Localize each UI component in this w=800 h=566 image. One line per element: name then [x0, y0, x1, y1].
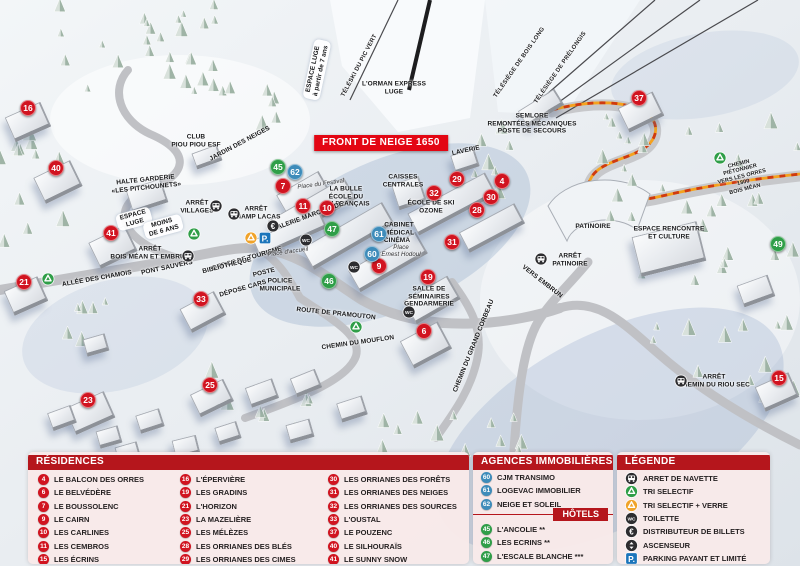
residence-item: 29LES ORRIANES DES CIMES: [180, 553, 296, 564]
legend-label: LES ORRIANES DES SOURCES: [344, 502, 457, 511]
svg-text:P.: P.: [628, 554, 635, 564]
legend-label: LE BOUSSOLENC: [54, 502, 119, 511]
legende-header: LÉGENDE: [617, 455, 770, 470]
legend-marker-40: 40: [328, 541, 339, 552]
legende-panel: LÉGENDE ARRET DE NAVETTETRI SELECTIFTRI …: [617, 452, 770, 564]
legende-label: TRI SELECTIF + VERRE: [643, 501, 728, 510]
legend-marker-37: 37: [328, 527, 339, 538]
residence-item: 41LE SUNNY SNOW: [328, 553, 457, 564]
svg-text:WC: WC: [627, 517, 636, 523]
legend-marker-16: 16: [180, 474, 191, 485]
hotels-divider: HÔTELS: [473, 514, 613, 521]
legend-marker-41: 41: [328, 554, 339, 564]
legende-list: ARRET DE NAVETTETRI SELECTIFTRI SELECTIF…: [625, 472, 770, 564]
agences-panel: AGENCES IMMOBILIÈRES 60CJM TRANSIMO61LOG…: [473, 452, 613, 564]
legend-label: LE SUNNY SNOW: [344, 555, 407, 564]
legend-label: LOGEVAC IMMOBILIER: [497, 486, 581, 495]
residence-item: 30LES ORRIANES DES FORÊTS: [328, 473, 457, 486]
elevator-icon: [625, 539, 638, 552]
hotels-list: 45L'ANCOLIE **46LES ECRINS **47L'ESCALE …: [481, 523, 613, 564]
legend-label: L'ÉPERVIÈRE: [196, 475, 245, 484]
legend-label: LE CAIRN: [54, 515, 89, 524]
legend-marker-21: 21: [180, 501, 191, 512]
residence-item: 11LES CEMBROS: [38, 539, 144, 552]
legende-item: ASCENSEUR: [625, 538, 770, 551]
legend-label: LES MÉLÈZES: [196, 528, 248, 537]
legend-marker-10: 10: [38, 527, 49, 538]
residence-item: 6LE BELVÉDÈRE: [38, 486, 144, 499]
legend-marker-32: 32: [328, 501, 339, 512]
legend-label: LES GRADINS: [196, 488, 247, 497]
legend-label: LE POUZENC: [344, 528, 392, 537]
resort-map: ESPACE LUGE à partir de 7 ansTÉLÉSKI DU …: [0, 0, 800, 566]
legend-marker-31: 31: [328, 487, 339, 498]
legende-label: DISTRIBUTEUR DE BILLETS: [643, 527, 745, 536]
legend-marker-30: 30: [328, 474, 339, 485]
legend-marker-61: 61: [481, 485, 492, 496]
hotel-item: 45L'ANCOLIE **: [481, 523, 613, 536]
legende-item: ARRET DE NAVETTE: [625, 472, 770, 485]
residences-column-1: 4LE BALCON DES ORRES6LE BELVÉDÈRE7LE BOU…: [38, 473, 144, 564]
legend-marker-47: 47: [481, 551, 492, 562]
agence-item: 61LOGEVAC IMMOBILIER: [481, 484, 613, 497]
legend-marker-33: 33: [328, 514, 339, 525]
residence-item: 15LES ÉCRINS: [38, 553, 144, 564]
front-de-neige-banner: FRONT DE NEIGE 1650: [314, 135, 448, 151]
residences-header: RÉSIDENCES: [28, 455, 469, 470]
residence-item: 19LES GRADINS: [180, 486, 296, 499]
legend-marker-46: 46: [481, 537, 492, 548]
legend-label: L'ESCALE BLANCHE ***: [497, 552, 583, 561]
legend-marker-11: 11: [38, 541, 49, 552]
residences-column-3: 30LES ORRIANES DES FORÊTS31LES ORRIANES …: [328, 473, 457, 564]
legend-label: LES ORRIANES DES CIMES: [196, 555, 296, 564]
legende-label: TRI SELECTIF: [643, 487, 693, 496]
residence-item: 25LES MÉLÈZES: [180, 526, 296, 539]
residences-panel: RÉSIDENCES 4LE BALCON DES ORRES6LE BELVÉ…: [28, 452, 469, 564]
legende-item: €DISTRIBUTEUR DE BILLETS: [625, 525, 770, 538]
legend-label: CJM TRANSIMO: [497, 473, 555, 482]
legend-marker-9: 9: [38, 514, 49, 525]
hotel-item: 46LES ECRINS **: [481, 536, 613, 549]
legende-label: PARKING PAYANT ET LIMITÉ: [643, 554, 746, 563]
legend-label: LE SILHOURAÏS: [344, 542, 402, 551]
legend-marker-28: 28: [180, 541, 191, 552]
legend-marker-6: 6: [38, 487, 49, 498]
legend-label: L'ANCOLIE **: [497, 525, 545, 534]
residence-item: 33L'OUSTAL: [328, 513, 457, 526]
legend-label: LES CEMBROS: [54, 542, 109, 551]
hotel-item: 49LES TRAPPEURS **: [481, 563, 613, 564]
legend-label: NEIGE ET SOLEIL: [497, 500, 561, 509]
recycle-green-icon: [625, 485, 638, 498]
legend-marker-4: 4: [38, 474, 49, 485]
legende-item: TRI SELECTIF: [625, 485, 770, 498]
euro-icon: €: [625, 525, 638, 538]
legend-marker-23: 23: [180, 514, 191, 525]
legend-label: LE BELVÉDÈRE: [54, 488, 111, 497]
legend-label: LES ECRINS **: [497, 538, 550, 547]
residence-item: 9LE CAIRN: [38, 513, 144, 526]
svg-text:€: €: [629, 528, 634, 537]
legende-item: P.PARKING PAYANT ET LIMITÉ: [625, 552, 770, 564]
hotels-header: HÔTELS: [553, 508, 608, 521]
legend-marker-60: 60: [481, 472, 492, 483]
legende-item: TRI SELECTIF + VERRE: [625, 499, 770, 512]
legend-marker-19: 19: [180, 487, 191, 498]
legend-label: LA MAZELIÈRE: [196, 515, 251, 524]
legend-label: LES CARLINES: [54, 528, 109, 537]
residence-item: 4LE BALCON DES ORRES: [38, 473, 144, 486]
residences-column-2: 16L'ÉPERVIÈRE19LES GRADINS21L'HORIZON23L…: [180, 473, 296, 564]
legend-marker-29: 29: [180, 554, 191, 564]
residence-item: 37LE POUZENC: [328, 526, 457, 539]
bus-icon: [625, 472, 638, 485]
parking-icon: P.: [625, 552, 638, 564]
legend-label: LES ÉCRINS: [54, 555, 99, 564]
legende-label: ARRET DE NAVETTE: [643, 474, 718, 483]
wc-icon: WC: [625, 512, 638, 525]
residence-item: 21L'HORIZON: [180, 500, 296, 513]
legend-label: LE BALCON DES ORRES: [54, 475, 144, 484]
residence-item: 40LE SILHOURAÏS: [328, 539, 457, 552]
residence-item: 7LE BOUSSOLENC: [38, 500, 144, 513]
legend-marker-7: 7: [38, 501, 49, 512]
agences-list: 60CJM TRANSIMO61LOGEVAC IMMOBILIER62NEIG…: [481, 471, 613, 511]
legend-label: LES ORRIANES DES FORÊTS: [344, 475, 450, 484]
residence-item: 28LES ORRIANES DES BLÉS: [180, 539, 296, 552]
hotel-item: 47L'ESCALE BLANCHE ***: [481, 549, 613, 562]
legend-marker-45: 45: [481, 524, 492, 535]
legend-label: LES ORRIANES DES BLÉS: [196, 542, 292, 551]
legend-label: LES ORRIANES DES NEIGES: [344, 488, 448, 497]
residence-item: 16L'ÉPERVIÈRE: [180, 473, 296, 486]
legend-marker-62: 62: [481, 499, 492, 510]
residence-item: 23LA MAZELIÈRE: [180, 513, 296, 526]
legende-label: ASCENSEUR: [643, 541, 690, 550]
agences-header: AGENCES IMMOBILIÈRES: [473, 455, 613, 470]
recycle-orange-icon: [625, 499, 638, 512]
residence-item: 31LES ORRIANES DES NEIGES: [328, 486, 457, 499]
legend-marker-15: 15: [38, 554, 49, 564]
residence-item: 10LES CARLINES: [38, 526, 144, 539]
legende-item: WCTOILETTE: [625, 512, 770, 525]
legend-label: L'HORIZON: [196, 502, 237, 511]
legend-marker-25: 25: [180, 527, 191, 538]
legend-label: L'OUSTAL: [344, 515, 381, 524]
agence-item: 60CJM TRANSIMO: [481, 471, 613, 484]
legende-label: TOILETTE: [643, 514, 679, 523]
residence-item: 32LES ORRIANES DES SOURCES: [328, 500, 457, 513]
